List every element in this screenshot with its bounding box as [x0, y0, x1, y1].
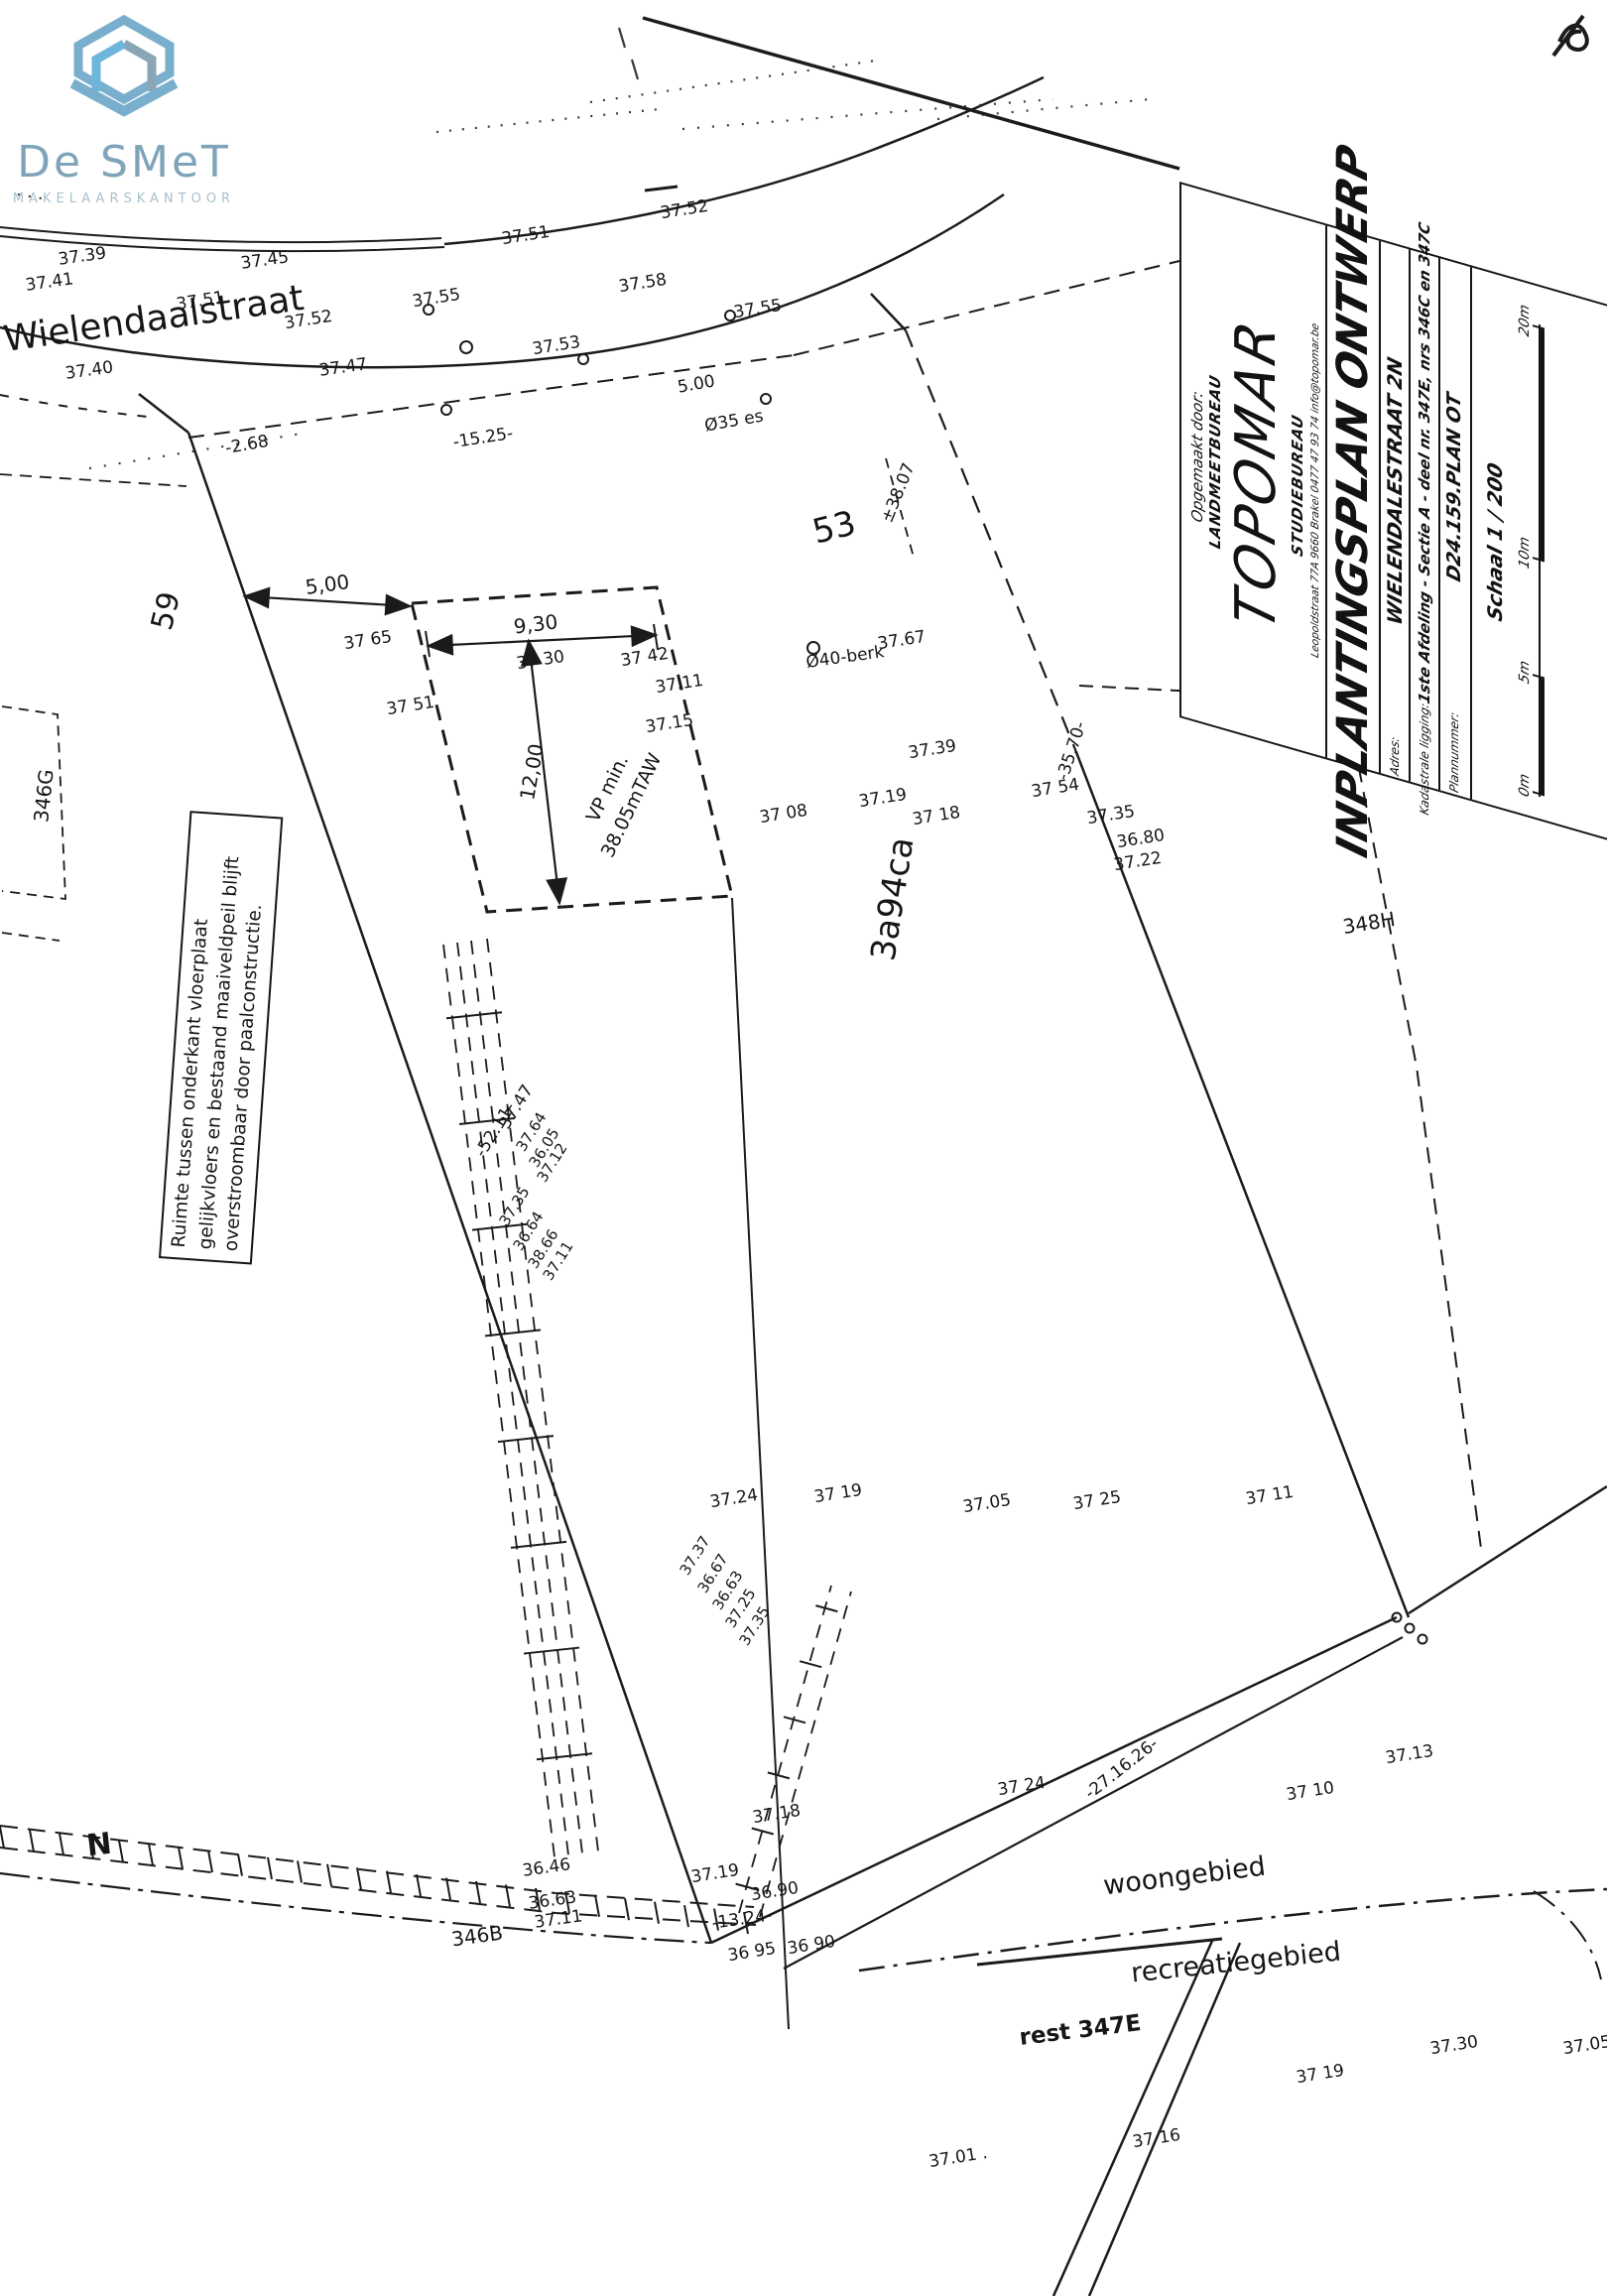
brand-subtitle: MAKELAARSKANTOOR	[10, 191, 238, 206]
parcel-number: 346B	[450, 1922, 504, 1949]
fence-line	[643, 18, 1179, 169]
building-outline	[412, 587, 732, 912]
scale-bar: 0m 5m 10m 20m	[1517, 300, 1550, 806]
dimension-label: 5,00	[305, 572, 351, 597]
dimension-label: 9,30	[513, 611, 559, 636]
cadastral-label: Kadastrale ligging:	[1418, 702, 1431, 817]
north-indicator: N	[85, 1830, 113, 1861]
plannumber-row: Plannummer: D24.159.PLAN OT	[1440, 258, 1468, 802]
scale-filled-segment	[1539, 328, 1545, 563]
scale-filled-segment	[1539, 678, 1545, 797]
scale-tick: 20m	[1517, 303, 1533, 338]
plannumber-value: D24.159.PLAN OT	[1443, 259, 1465, 715]
scale-strip: Schaal 1 / 200 0m 5m 10m 20m	[1474, 268, 1559, 829]
company-name: TOPOMAR	[1224, 311, 1289, 636]
surveyor-address: Leopoldstraat 77A 9660 Brakel 0477 47 93…	[1309, 321, 1321, 659]
scale-tick: 5m	[1517, 659, 1533, 686]
titleblock-divider	[1470, 267, 1472, 800]
parcel-number: 59	[148, 589, 185, 633]
surveyor-block: Opgemaakt door: LANDMEETBUREAU TOPOMAR S…	[1185, 186, 1323, 761]
plannumber-label: Plannummer:	[1447, 710, 1461, 794]
studiebureau-label: STUDIEBUREAU	[1289, 412, 1306, 558]
address-row: Adres: WIELENDALESTRAAT 2N	[1381, 241, 1409, 785]
cadastral-value: 1ste Afdeling - Sectie A - deel nr. 347E…	[1416, 220, 1433, 705]
address-value: WIELENDALESTRAAT 2N	[1383, 242, 1407, 740]
parcel-number: 346G	[31, 768, 57, 823]
scale-tick: 0m	[1517, 772, 1533, 799]
dike-hatching	[0, 1586, 851, 1943]
address-label: Adres:	[1388, 735, 1402, 777]
desmet-logo: De SMeT MAKELAARSKANTOOR	[10, 14, 238, 206]
cadastral-row: Kadastrale ligging: 1ste Afdeling - Sect…	[1411, 250, 1438, 794]
scribble-mark	[1553, 16, 1587, 56]
brand-name: De SMeT	[10, 137, 238, 188]
plan-title-strip: INPLANTINGSPLAN ONTWERP	[1327, 226, 1379, 777]
plan-canvas: Wielendaalstraat37.3937.4537.5137.5237.4…	[0, 0, 1607, 2296]
parcel-number: 53	[809, 506, 859, 549]
scale-tick: 10m	[1517, 535, 1533, 571]
desmet-house-icon	[64, 14, 184, 131]
scale-label: Schaal 1 / 200	[1483, 460, 1507, 624]
dimension-arrows	[245, 596, 658, 903]
driveway-lines	[443, 939, 599, 1865]
landmeetbureau-label: LANDMEETBUREAU	[1206, 372, 1224, 551]
plan-title: INPLANTINGSPLAN ONTWERP	[1328, 140, 1378, 863]
prepared-by-label: Opgemaakt door:	[1188, 389, 1206, 525]
